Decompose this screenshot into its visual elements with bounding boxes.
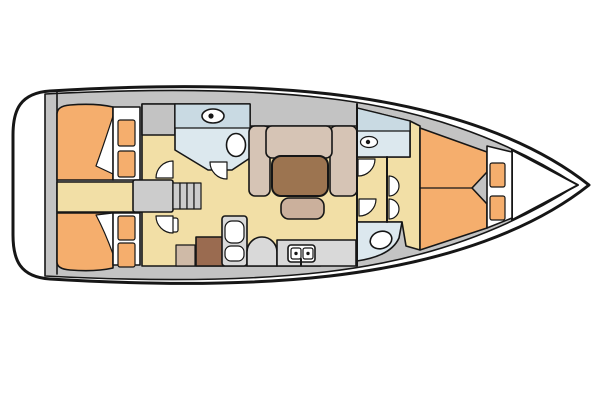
yacht-deck-plan-page — [0, 0, 600, 400]
aft-head-toilet — [227, 134, 246, 157]
saloon-table — [272, 156, 328, 196]
stove-burner-knob — [294, 252, 297, 255]
aft-head-sink-drain — [208, 113, 213, 118]
forward-head-sink-drain — [366, 140, 370, 144]
galley-sink-bowl — [225, 246, 244, 261]
yacht-deck-plan — [0, 0, 600, 400]
galley-sink-bowl — [225, 221, 244, 243]
galley-fridge — [247, 237, 277, 266]
settee-back — [266, 126, 332, 158]
companionway-landing — [133, 180, 173, 212]
aft-port-shelf-cushion — [118, 120, 135, 146]
companionway-step — [173, 183, 180, 209]
aft-port-shelf-cushion — [118, 151, 135, 177]
companionway-step — [194, 183, 201, 209]
bow-shelf-cushion — [490, 163, 505, 187]
companionway-group — [133, 180, 201, 212]
nav-table — [196, 237, 224, 266]
settee-right — [330, 126, 357, 196]
aft-starboard-shelf-cushion — [118, 216, 135, 240]
companionway-step — [180, 183, 187, 209]
nav-seat — [176, 245, 195, 266]
bow-shelf-cushion — [490, 196, 505, 220]
aft-starboard-shelf-cushion — [118, 243, 135, 267]
stove-burner-knob — [306, 252, 309, 255]
companionway-step — [187, 183, 194, 209]
saloon-bench — [281, 198, 324, 219]
aft-locker-block — [142, 104, 175, 135]
